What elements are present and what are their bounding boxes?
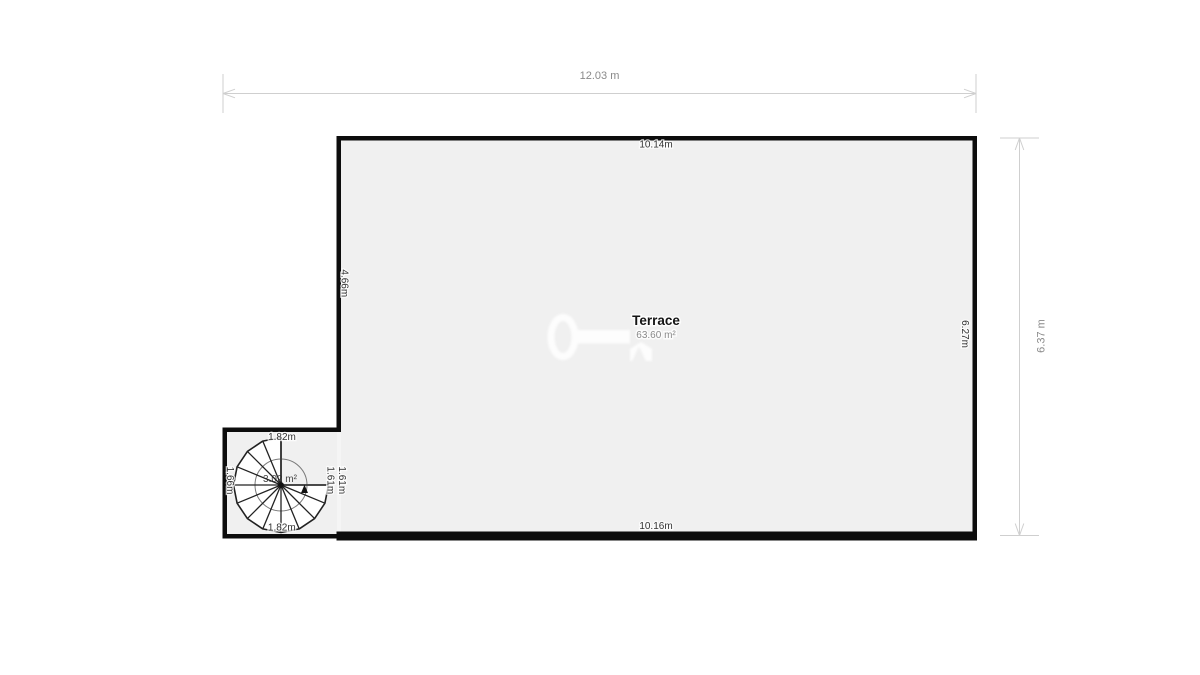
svg-text:6.27m: 6.27m — [959, 320, 970, 348]
svg-text:1.82m: 1.82m — [268, 523, 296, 534]
svg-text:12.03 m: 12.03 m — [580, 70, 620, 82]
svg-text:1.66m: 1.66m — [224, 467, 235, 495]
svg-text:4.66m: 4.66m — [338, 269, 349, 297]
svg-text:10.16m: 10.16m — [639, 521, 672, 532]
svg-text:1.61m: 1.61m — [325, 466, 336, 494]
svg-text:1.61m: 1.61m — [336, 466, 347, 494]
svg-text:6.37 m: 6.37 m — [1036, 319, 1048, 353]
svg-text:10.14m: 10.14m — [639, 140, 672, 151]
svg-text:63.60 m²: 63.60 m² — [636, 330, 676, 341]
svg-text:1.82m: 1.82m — [268, 432, 296, 443]
svg-text:Terrace: Terrace — [632, 313, 680, 328]
